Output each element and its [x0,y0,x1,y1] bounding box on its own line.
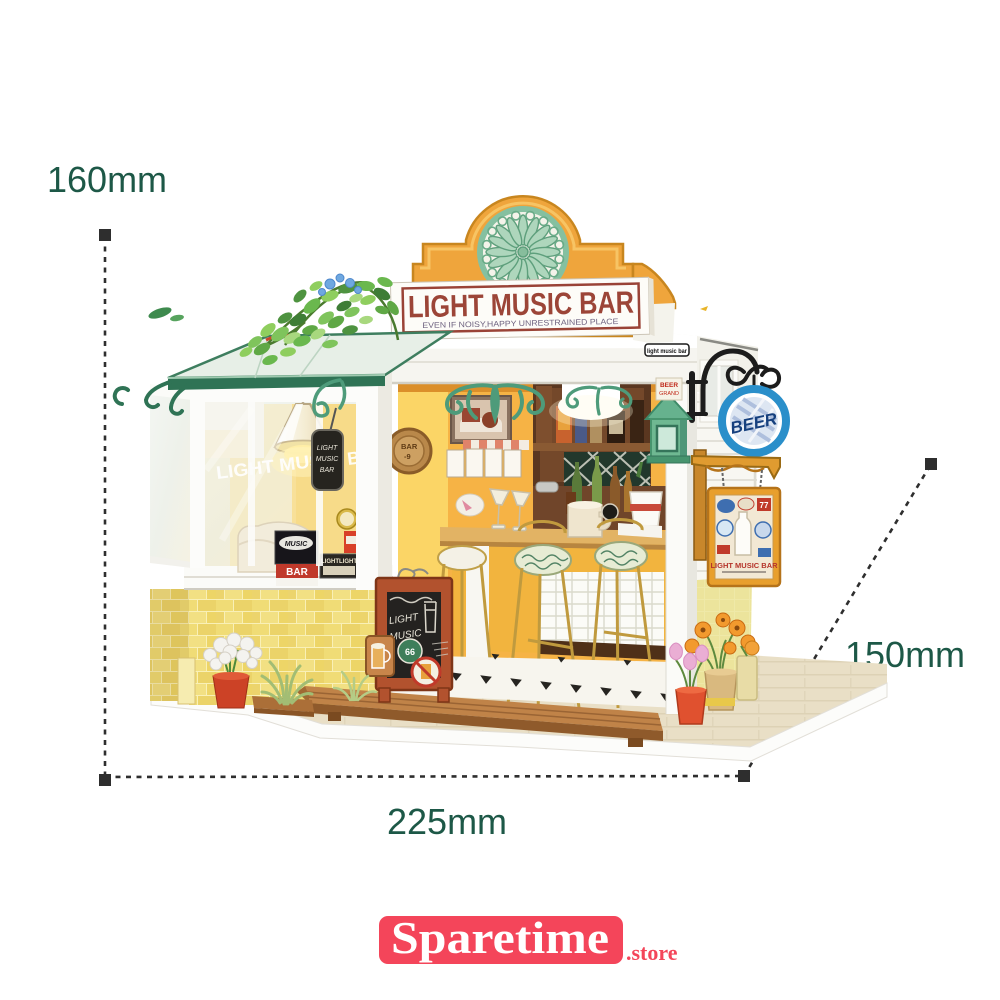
svg-text:.store: .store [626,940,678,965]
svg-text:LIGHTLIGHT: LIGHTLIGHT [321,559,357,565]
svg-text:BAR: BAR [320,467,334,474]
svg-text:LIGHT MUSIC BAR: LIGHT MUSIC BAR [710,561,778,570]
svg-text:MUSIC: MUSIC [316,456,340,463]
svg-text:77: 77 [760,501,769,510]
svg-text:225mm: 225mm [387,801,507,842]
svg-text:GRAND: GRAND [659,391,679,397]
svg-text:light music bar: light music bar [647,348,687,355]
svg-text:MUSIC: MUSIC [285,541,309,548]
svg-text:66: 66 [405,647,415,657]
svg-text:160mm: 160mm [47,159,167,200]
svg-text:BAR: BAR [286,567,308,578]
svg-text:Sparetime: Sparetime [391,912,609,963]
svg-text:BAR: BAR [401,442,418,451]
svg-text:BEER: BEER [660,382,678,389]
svg-text:LIGHT: LIGHT [317,445,338,452]
svg-text:-9: -9 [404,452,411,461]
